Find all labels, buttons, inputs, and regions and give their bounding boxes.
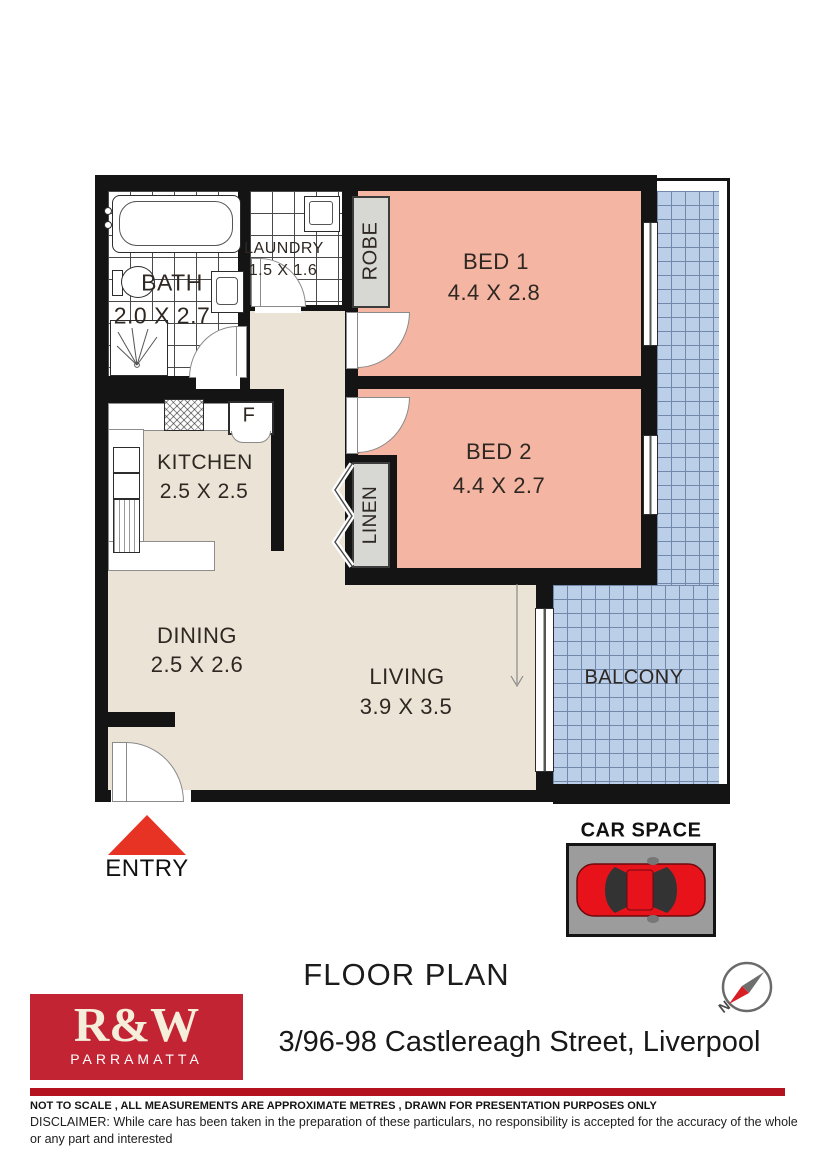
dining-wall-stub: [100, 712, 175, 727]
room-living-dims: 3.9 X 3.5: [360, 694, 453, 720]
bathtub-inner: [119, 201, 233, 246]
room-bed1-dims: 4.4 X 2.8: [448, 280, 541, 306]
disclaimer-line-1: DISCLAIMER: While care has been taken in…: [30, 1114, 808, 1149]
room-dining-label: DINING: [157, 623, 237, 649]
property-address: 3/96-98 Castlereagh Street, Liverpool: [250, 1026, 789, 1059]
not-to-scale-note: NOT TO SCALE , ALL MEASUREMENTS ARE APPR…: [30, 1100, 800, 1112]
hallway-floor: [250, 311, 345, 392]
sliding-door-living: [535, 608, 554, 772]
linen-label: LINEN: [360, 486, 382, 544]
room-kitchen-label: KITCHEN: [157, 451, 253, 475]
room-kitchen-dims: 2.5 X 2.5: [160, 480, 249, 504]
robe-label: ROBE: [360, 222, 383, 281]
room-laundry-dims: 1.5 X 1.6: [249, 262, 318, 280]
page-title: FLOOR PLAN: [0, 957, 813, 993]
laundry-tub-basin: [309, 201, 333, 225]
vanity-basin: [216, 277, 238, 305]
car-space-box: [566, 843, 716, 937]
brand-logo: R&W PARRAMATTA: [30, 994, 243, 1080]
bath-tap-2: [104, 221, 112, 229]
disclaimer-text: DISCLAIMER: While care has been taken in…: [30, 1114, 808, 1150]
door-bath-gap: [196, 376, 240, 389]
logo-brand-text: R&W: [30, 997, 243, 1053]
entry-label: ENTRY: [105, 855, 188, 883]
floor-plan-page: BATH 2.0 X 2.7 LAUNDRY 1.5 X 1.6 ROBE BE…: [0, 0, 813, 1150]
balcony-label: BALCONY: [584, 667, 683, 690]
living-flow-arrow: [507, 584, 527, 694]
compass-icon: N: [714, 960, 776, 1020]
room-bath-dims: 2.0 X 2.7: [114, 303, 211, 330]
window-bed1: [643, 222, 658, 346]
fridge-label: F: [243, 405, 256, 428]
room-dining-dims: 2.5 X 2.6: [151, 652, 244, 678]
car-space-label: CAR SPACE: [581, 820, 702, 843]
balcony-bottom-wall: [553, 784, 730, 804]
room-bath-label: BATH: [141, 270, 203, 297]
room-bed1-label: BED 1: [463, 249, 529, 275]
bath-tap: [104, 207, 112, 215]
fridge-door-swing: [231, 431, 271, 443]
room-living-label: LIVING: [369, 664, 444, 690]
kitchen-sink-bowl-2: [113, 473, 140, 499]
kitchen-sink-drainer: [113, 499, 140, 553]
logo-office-text: PARRAMATTA: [30, 1051, 243, 1067]
room-bed2-dims: 4.4 X 2.7: [453, 473, 546, 499]
room-bed2-label: BED 2: [466, 439, 532, 465]
entry-arrow-icon: [108, 815, 186, 855]
balcony-tiles-strip: [657, 191, 719, 585]
red-divider: [30, 1088, 785, 1096]
car-top-view-icon: [575, 857, 707, 923]
window-bed2: [643, 435, 658, 515]
room-laundry-label: LAUNDRY: [244, 240, 324, 258]
linen-bifold-door: [328, 460, 354, 570]
kitchen-sink-bowl-1: [113, 447, 140, 473]
stove: [164, 399, 204, 431]
